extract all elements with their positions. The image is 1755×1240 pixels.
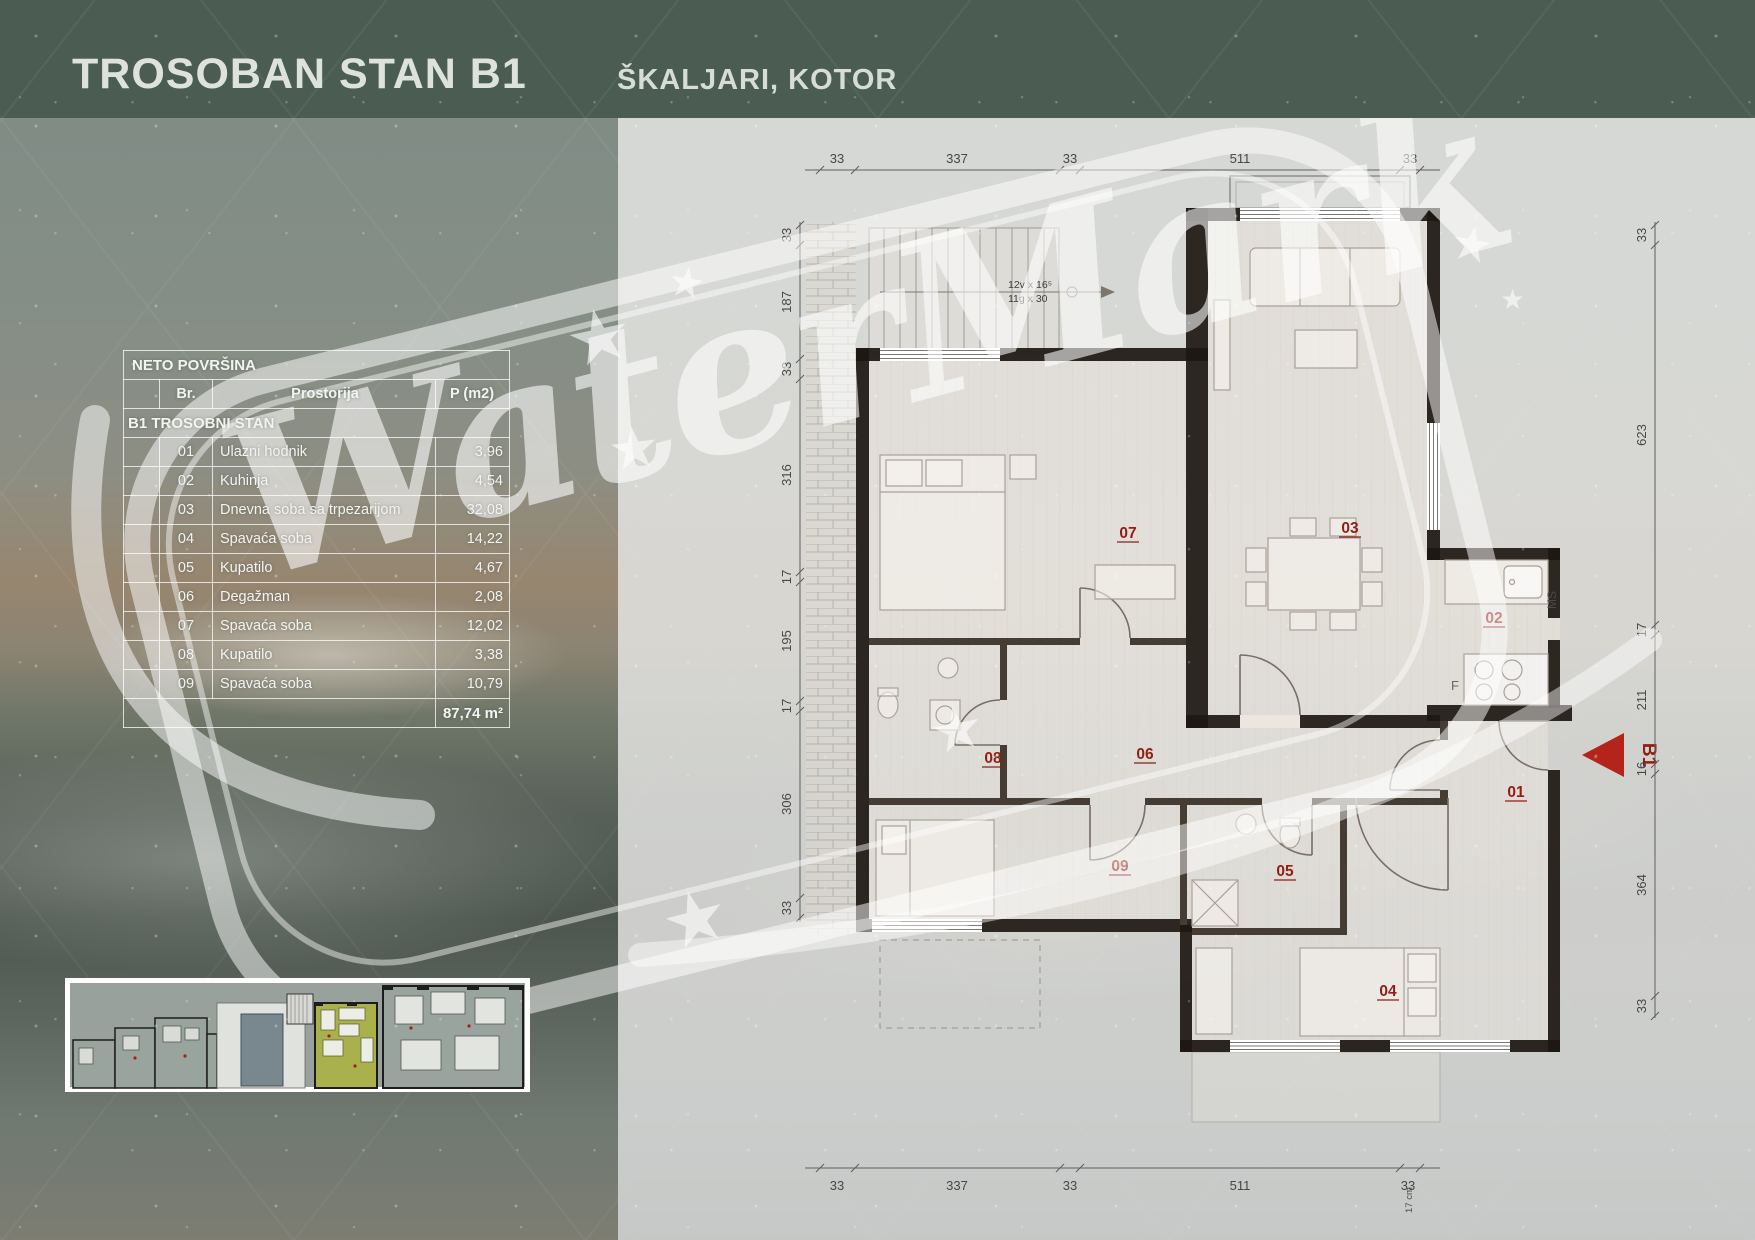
svg-text:33: 33 <box>1403 151 1417 166</box>
row-room: Spavaća soba <box>213 525 436 554</box>
svg-text:195: 195 <box>779 630 794 652</box>
row-room: Spavaća soba <box>213 670 436 699</box>
header-band: TROSOBAN STAN B1 ŠKALJARI, KOTOR <box>0 0 1755 118</box>
row-area: 3,38 <box>436 641 510 670</box>
svg-text:337: 337 <box>946 1178 968 1193</box>
row-area: 3,96 <box>436 438 510 467</box>
svg-text:33: 33 <box>1634 228 1649 242</box>
row-room: Kupatilo <box>213 641 436 670</box>
row-area: 4,54 <box>436 467 510 496</box>
row-number: 06 <box>160 583 213 612</box>
svg-text:33: 33 <box>779 901 794 915</box>
svg-text:364: 364 <box>1634 874 1649 896</box>
table-row: 02Kuhinja4,54 <box>124 467 510 496</box>
svg-text:16: 16 <box>1634 762 1649 776</box>
svg-text:17: 17 <box>779 699 794 713</box>
room-label-04: 04 <box>1379 983 1397 1000</box>
svg-text:623: 623 <box>1634 424 1649 446</box>
room-label-07: 07 <box>1119 525 1136 542</box>
section-label: B1 TROSOBNI STAN <box>124 409 510 438</box>
svg-text:511: 511 <box>1230 1178 1251 1193</box>
row-area: 10,79 <box>436 670 510 699</box>
room-label-05: 05 <box>1276 863 1294 880</box>
stair-note-line1: 12v x 16⁵ <box>1008 279 1052 291</box>
corner-scale-note: 17 cm <box>1404 1187 1415 1213</box>
table-row: 05Kupatilo4,67 <box>124 554 510 583</box>
col-header-area: P (m2) <box>436 380 510 409</box>
row-number: 09 <box>160 670 213 699</box>
svg-text:211: 211 <box>1634 690 1649 711</box>
table-title: NETO POVRŠINA <box>124 351 510 380</box>
svg-text:33: 33 <box>1634 999 1649 1013</box>
brochure-page: 12v x 16⁵ 11g x 30 <box>0 0 1755 1240</box>
row-room: Kupatilo <box>213 554 436 583</box>
svg-text:337: 337 <box>946 151 968 166</box>
row-room: Spavaća soba <box>213 612 436 641</box>
table-row: 08Kupatilo3,38 <box>124 641 510 670</box>
svg-text:17: 17 <box>779 570 794 584</box>
row-number: 04 <box>160 525 213 554</box>
site-overview-plan <box>65 978 530 1092</box>
room-label-02: 02 <box>1485 610 1502 627</box>
stairwell <box>869 228 1115 352</box>
row-number: 01 <box>160 438 213 467</box>
table-row: 03Dnevna soba sa trpezarijom32,08 <box>124 496 510 525</box>
room-label-01: 01 <box>1507 784 1525 801</box>
row-room: Kuhinja <box>213 467 436 496</box>
gutter-cell <box>124 380 160 409</box>
row-number: 07 <box>160 612 213 641</box>
svg-text:33: 33 <box>779 362 794 376</box>
svg-text:511: 511 <box>1230 151 1251 166</box>
room-label-08: 08 <box>984 750 1002 767</box>
room-label-03: 03 <box>1341 520 1359 537</box>
row-number: 08 <box>160 641 213 670</box>
svg-text:33: 33 <box>779 228 794 242</box>
svg-text:306: 306 <box>779 793 794 815</box>
net-area-table: NETO POVRŠINA Br. Prostorija P (m2) B1 T… <box>123 350 510 728</box>
col-header-br: Br. <box>160 380 213 409</box>
unit-marker-arrow-icon <box>1582 733 1624 777</box>
table-header-row: Br. Prostorija P (m2) <box>124 380 510 409</box>
door-gap <box>1240 715 1300 728</box>
table-row: 04Spavaća soba14,22 <box>124 525 510 554</box>
svg-text:33: 33 <box>830 1178 844 1193</box>
row-area: 2,08 <box>436 583 510 612</box>
table-row: 01Ulazni hodnik3,96 <box>124 438 510 467</box>
shaft-label: MS <box>1545 591 1559 609</box>
row-area: 4,67 <box>436 554 510 583</box>
total-area: 87,74 m² <box>436 699 510 728</box>
table-row: 06Degažman2,08 <box>124 583 510 612</box>
row-number: 02 <box>160 467 213 496</box>
stair-note-line2: 11g x 30 <box>1008 293 1048 305</box>
svg-text:33: 33 <box>1063 1178 1077 1193</box>
page-location: ŠKALJARI, KOTOR <box>617 64 897 97</box>
svg-text:316: 316 <box>779 464 794 486</box>
fridge-label: F <box>1451 678 1459 693</box>
row-room: Dnevna soba sa trpezarijom <box>213 496 436 525</box>
svg-text:17: 17 <box>1634 623 1649 637</box>
row-area: 14,22 <box>436 525 510 554</box>
table-section-row: B1 TROSOBNI STAN <box>124 409 510 438</box>
row-number: 05 <box>160 554 213 583</box>
table-total-row: 87,74 m² <box>124 699 510 728</box>
svg-text:33: 33 <box>1063 151 1077 166</box>
row-number: 03 <box>160 496 213 525</box>
brick-wall-hatch <box>806 222 856 934</box>
svg-text:187: 187 <box>779 291 794 313</box>
table-row: 07Spavaća soba12,02 <box>124 612 510 641</box>
table-title-row: NETO POVRŠINA <box>124 351 510 380</box>
row-room: Ulazni hodnik <box>213 438 436 467</box>
page-title: TROSOBAN STAN B1 <box>72 50 527 99</box>
room-label-06: 06 <box>1136 746 1154 763</box>
svg-text:33: 33 <box>830 151 844 166</box>
room-label-09: 09 <box>1111 858 1129 875</box>
row-area: 32,08 <box>436 496 510 525</box>
row-area: 12,02 <box>436 612 510 641</box>
col-header-room: Prostorija <box>213 380 436 409</box>
row-room: Degažman <box>213 583 436 612</box>
table-row: 09Spavaća soba10,79 <box>124 670 510 699</box>
